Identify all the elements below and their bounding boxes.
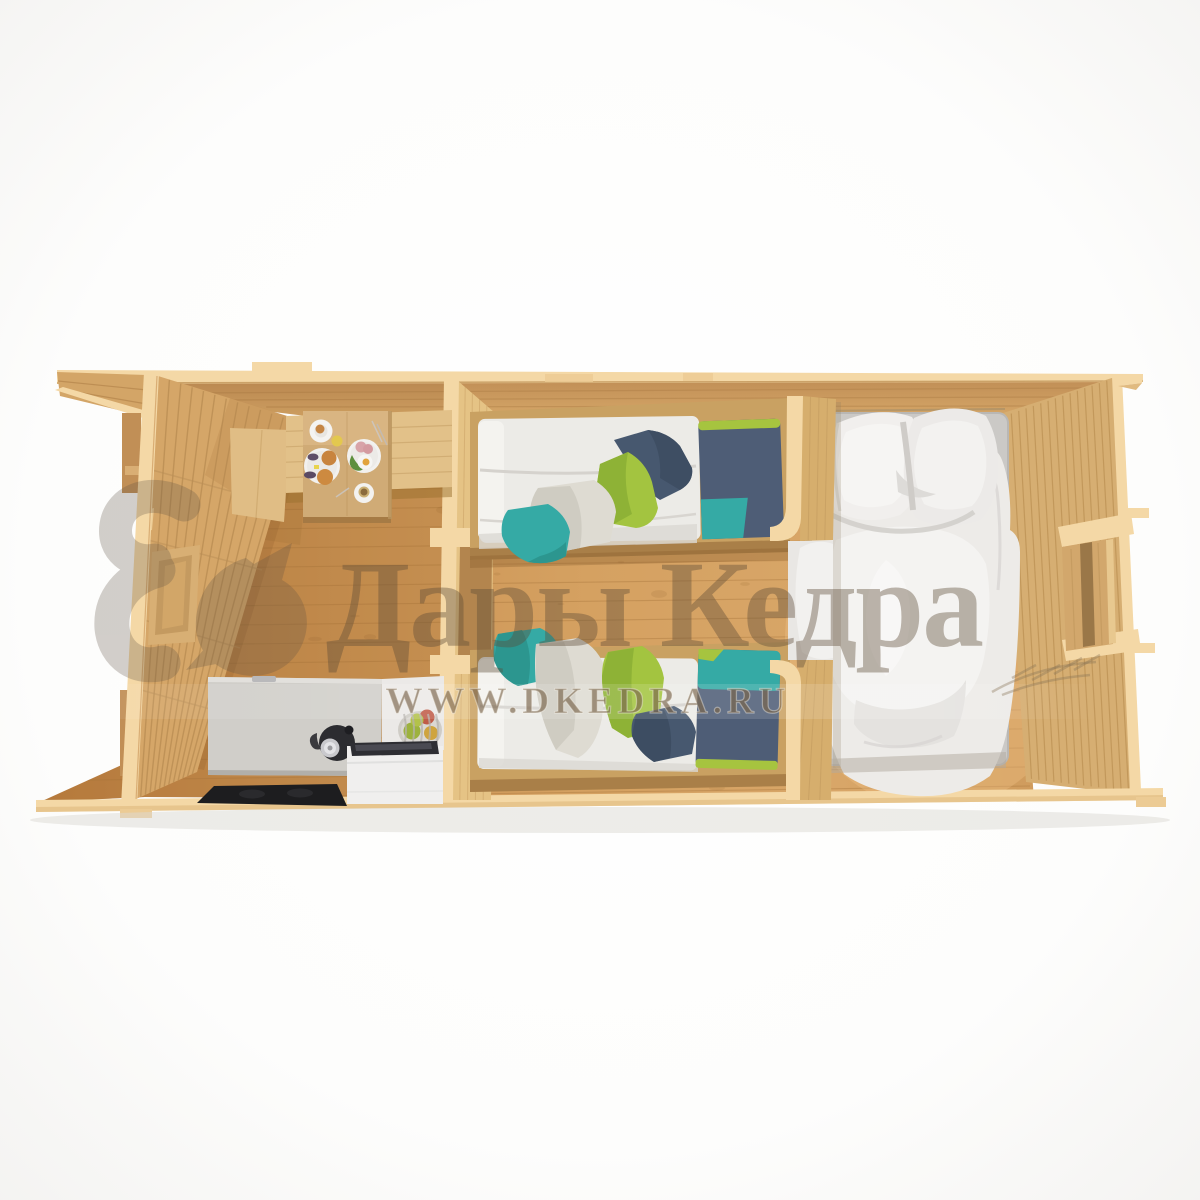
svg-text:Дары Кедра: Дары Кедра — [326, 536, 983, 673]
svg-text:WWW.DKEDRA.RU: WWW.DKEDRA.RU — [386, 681, 791, 722]
